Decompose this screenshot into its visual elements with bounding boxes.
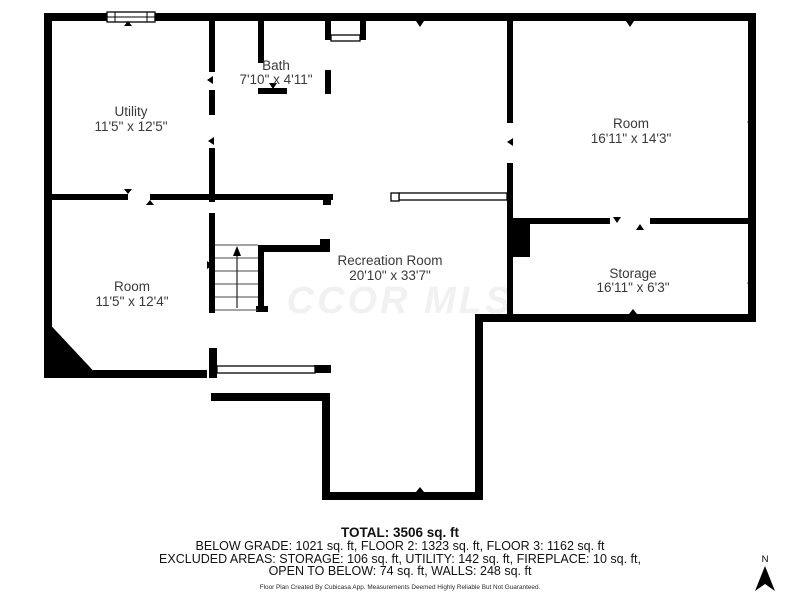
wall-storage-top-b [650,218,748,224]
stair-up-arrow-icon [233,246,241,256]
door-marker [124,189,132,194]
north-label: N [762,554,769,565]
wall-bath-bottom [258,88,287,94]
summary-total: TOTAL: 3506 sq. ft [341,525,460,540]
room-label-storage: Storage [609,266,656,281]
disclaimer-text: Floor Plan Created By Cubicasa App. Meas… [260,584,541,591]
floor-plan-page: CCOR MLS [0,0,800,600]
wall-room-bottom [93,370,207,378]
door-marker [626,21,634,27]
floor-plan-diagram: CCOR MLS [0,0,800,600]
wall-peninsula-left [322,393,330,500]
wall-bath-right-a [325,21,331,40]
summary-line3: OPEN TO BELOW: 74 sq. ft, WALLS: 248 sq.… [269,564,532,578]
wall-stairs-cap [256,306,268,312]
area-summary: TOTAL: 3506 sq. ft BELOW GRADE: 1021 sq.… [159,525,641,591]
wall-divider-a [507,21,513,123]
room-label-bath: Bath [262,58,290,73]
wall-stairs-top-nub [320,239,330,252]
room-labels: Utility 11'5" x 12'5" Bath 7'10" x 4'11"… [94,58,671,309]
wall-hall-stub [209,348,217,378]
wall-closet-stub [360,21,366,40]
wall-utility-nub [323,200,331,205]
stairs-icon [215,245,258,310]
door-marker [629,309,637,314]
door-marker [208,137,214,145]
wall-window-cap [314,365,331,373]
railing-icon [399,193,507,200]
room-dims-bath: 7'10" x 4'11" [239,72,312,87]
room-dims-storage: 16'11" x 6'3" [596,280,669,295]
wall-step [211,393,330,401]
wall-storage-bottom [475,314,756,322]
wall-bath-left [258,21,264,63]
wall-bath-right-b [325,70,331,94]
room-label-room-right: Room [613,116,649,131]
north-arrow-icon: N [755,554,775,591]
door-marker [207,76,213,84]
room-label-room-left: Room [114,279,150,294]
wall-peninsula-bottom [322,492,483,500]
door-marker [146,200,154,205]
door-marker [416,21,424,27]
room-dims-room-right: 16'11" x 14'3" [591,131,672,146]
summary-line1: BELOW GRADE: 1021 sq. ft, FLOOR 2: 1323 … [196,539,605,553]
wall-stairs-right [258,245,264,312]
room-dims-room-left: 11'5" x 12'4" [95,294,168,309]
window-icon-basement [217,366,315,373]
room-dims-utility: 11'5" x 12'5" [94,119,167,134]
wall-utility-bottom-b [150,194,333,200]
chimney-block [507,222,530,257]
railing-post [391,193,399,201]
door-marker [507,138,513,146]
room-label-recreation: Recreation Room [337,253,442,268]
fireplace-corner [44,318,100,378]
north-arrow-glyph [755,566,775,591]
wall-hall-c [209,148,215,202]
closet-door-icon [331,35,360,41]
wall-utility-bottom-a [52,194,128,200]
wall-storage-top-a [513,218,610,224]
wall-hall-a [209,21,215,72]
wall-hall-b [209,90,215,115]
room-dims-recreation: 20'10" x 33'7" [349,268,431,283]
wall-peninsula-right [475,314,483,500]
wall-stairs-top [258,245,330,252]
wall-right [748,13,756,322]
door-marker [636,224,644,230]
door-marker [416,487,424,492]
room-label-utility: Utility [115,104,148,119]
door-marker [613,217,621,223]
